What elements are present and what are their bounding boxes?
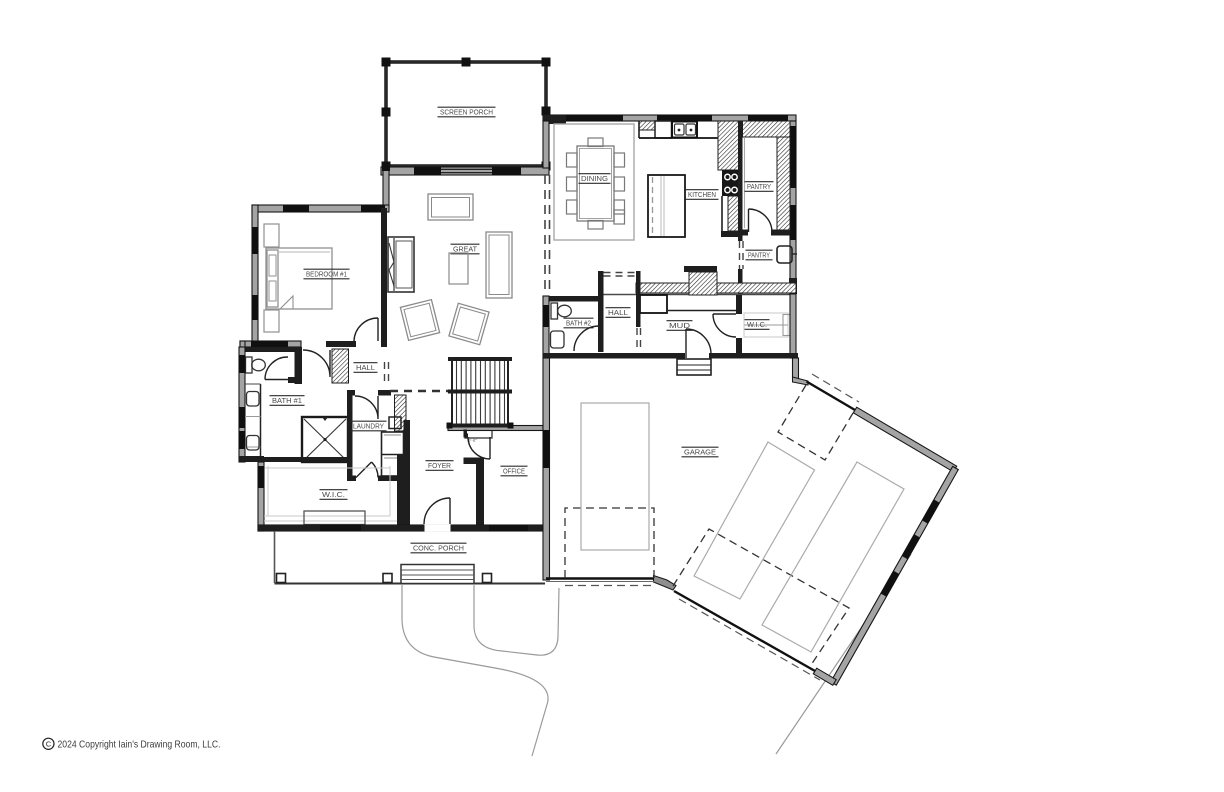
svg-text:OFFICE: OFFICE	[503, 467, 525, 476]
svg-text:W.I.C.: W.I.C.	[322, 490, 345, 499]
svg-text:CONC. PORCH: CONC. PORCH	[413, 544, 464, 553]
svg-text:BEDROOM #1: BEDROOM #1	[306, 270, 347, 279]
svg-text:9'-8": 9'-8"	[468, 438, 477, 443]
svg-text:BATH #1: BATH #1	[272, 396, 302, 405]
svg-text:HALL: HALL	[608, 308, 628, 317]
svg-text:HALL: HALL	[356, 363, 375, 372]
svg-text:GREAT: GREAT	[453, 245, 478, 254]
svg-text:SCREEN PORCH: SCREEN PORCH	[440, 108, 493, 117]
svg-text:LAUNDRY: LAUNDRY	[353, 422, 384, 431]
svg-text:C: C	[46, 740, 52, 749]
svg-text:DINING: DINING	[581, 174, 608, 183]
svg-text:BATH #2: BATH #2	[566, 319, 591, 328]
svg-text:KITCHEN: KITCHEN	[688, 190, 716, 199]
svg-text:2024 Copyright Iain's Drawing: 2024 Copyright Iain's Drawing Room, LLC.	[58, 739, 221, 751]
svg-text:PANTRY: PANTRY	[748, 251, 770, 260]
svg-text:W.I.C.: W.I.C.	[747, 320, 767, 329]
svg-text:FOYER: FOYER	[428, 461, 451, 470]
svg-text:PANTRY: PANTRY	[747, 182, 771, 191]
svg-text:GARAGE: GARAGE	[684, 448, 716, 457]
